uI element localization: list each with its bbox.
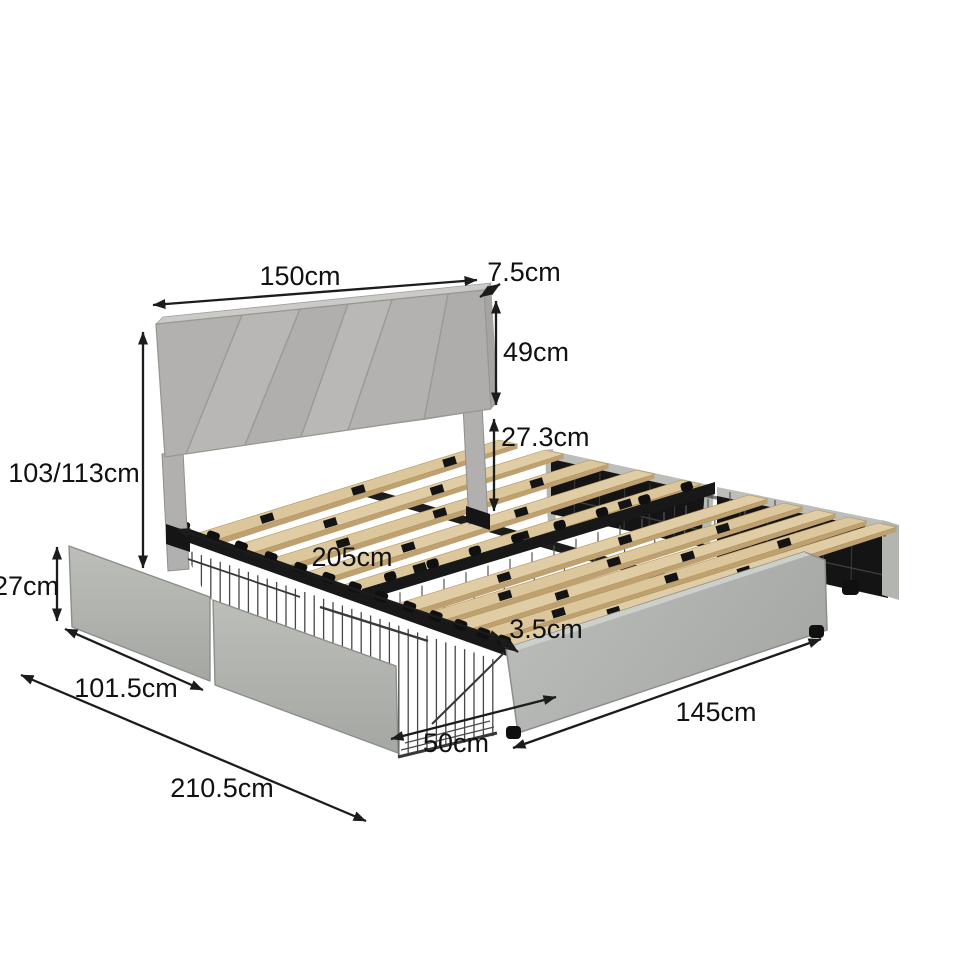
headboard-leg-left bbox=[162, 451, 189, 571]
footboard-foot-near bbox=[506, 726, 521, 739]
label-headboard-width: 150cm bbox=[259, 261, 340, 291]
label-bed-length: 205cm bbox=[311, 542, 392, 572]
label-drawer-width: 101.5cm bbox=[74, 673, 178, 703]
label-total-length: 210.5cm bbox=[170, 773, 274, 803]
far-foot bbox=[842, 580, 859, 595]
label-frame-clearance: 27.3cm bbox=[501, 422, 590, 452]
footboard-foot-far bbox=[809, 625, 824, 638]
label-headboard-height: 49cm bbox=[503, 337, 569, 367]
diagram-canvas: 150cm 7.5cm 49cm 27.3cm 103/113cm 205cm … bbox=[0, 0, 970, 971]
label-drawer-depth: 50cm bbox=[423, 728, 489, 758]
label-headboard-thickness: 7.5cm bbox=[487, 257, 561, 287]
label-total-height: 103/113cm bbox=[8, 458, 140, 488]
label-footboard-width: 145cm bbox=[675, 697, 756, 727]
label-drawer-height: 27cm bbox=[0, 571, 59, 601]
label-slat-thickness: 3.5cm bbox=[509, 614, 583, 644]
bed-dimension-diagram: 150cm 7.5cm 49cm 27.3cm 103/113cm 205cm … bbox=[0, 0, 970, 971]
